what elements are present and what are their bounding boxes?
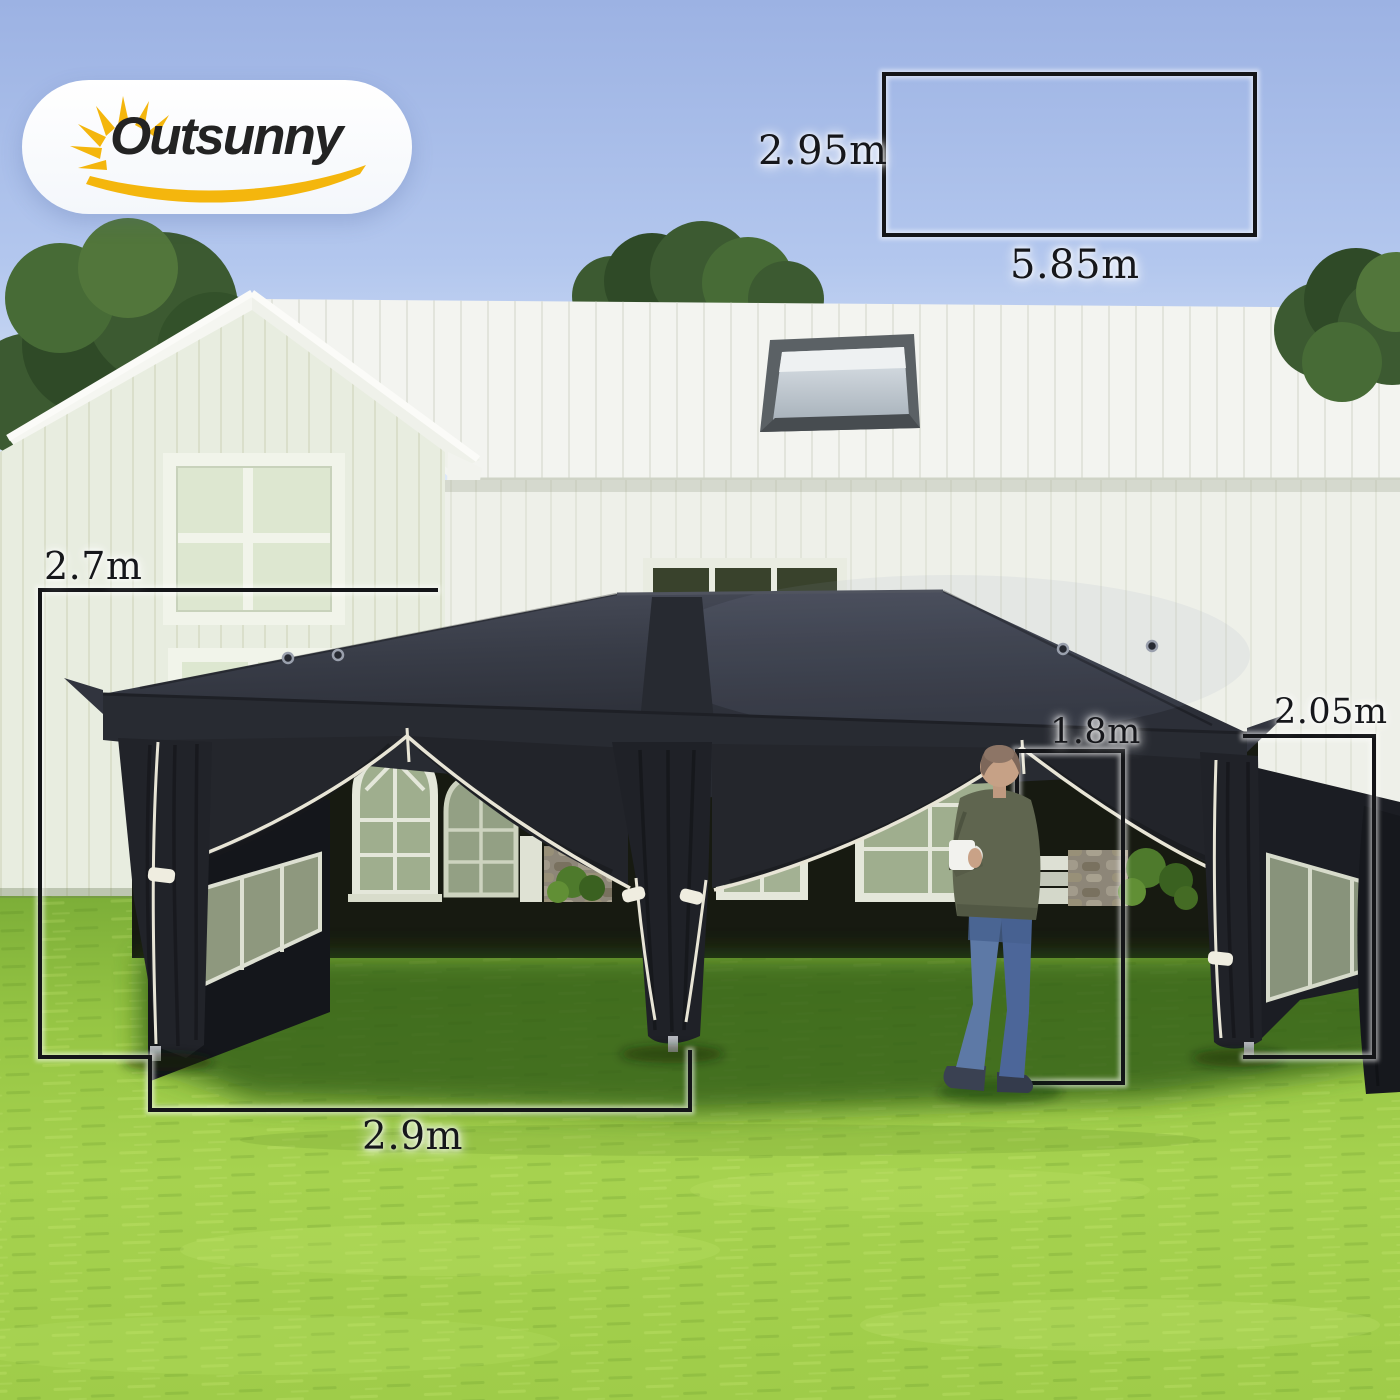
hand (968, 848, 982, 868)
brand-logo: Outsunny (22, 80, 412, 214)
logo-swoosh (86, 165, 366, 203)
product-image: Outsunny 2.95m 5.85m 2.7m 2.9m 1.8m 2.05… (0, 0, 1400, 1400)
label-folded-height: 2.95m (758, 128, 870, 174)
label-bay-width: 2.9m (362, 1114, 463, 1159)
label-peak-height: 2.7m (44, 544, 142, 588)
label-door-height: 1.8m (1050, 712, 1141, 752)
arch-window-left (348, 750, 442, 902)
label-folded-width: 5.85m (1010, 242, 1134, 288)
brand-name: Outsunny (110, 106, 341, 167)
skylight-window (760, 334, 920, 432)
door-jamb (520, 836, 542, 902)
shoe-left (944, 1066, 986, 1091)
gable-window-upper (163, 453, 345, 625)
label-side-height: 2.05m (1274, 692, 1388, 732)
